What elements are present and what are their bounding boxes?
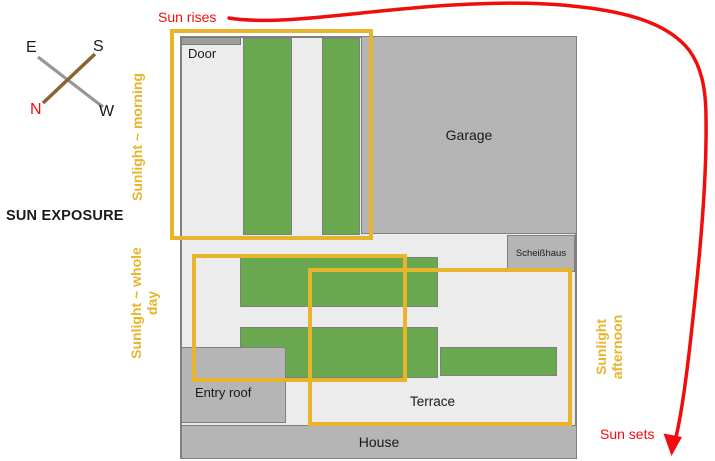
zone-whole-day-label: Sunlight ~ whole day (128, 247, 160, 359)
compass-label-north: N (30, 101, 42, 119)
entry-roof-label: Entry roof (195, 385, 251, 400)
compass-label-east: E (26, 39, 37, 57)
garage-label: Garage (446, 127, 493, 143)
garage: Garage (361, 36, 577, 234)
zone-afternoon-label: Sunlight afternoon (593, 315, 625, 380)
diagram-title: SUN EXPOSURE (6, 208, 124, 224)
arrowhead-icon (664, 434, 683, 457)
zone-afternoon-box (308, 268, 572, 426)
compass-label-west: W (99, 103, 114, 121)
house: House (181, 425, 577, 459)
sun-exposure-diagram: E S N W SUN EXPOSURE Door Garage Scheißh… (0, 0, 715, 461)
sun-sets-label: Sun sets (600, 426, 654, 442)
zone-morning-label: Sunlight ~ morning (129, 73, 145, 201)
sun-rises-label: Sun rises (158, 9, 216, 25)
scheisshaus: Scheißhaus (507, 235, 575, 272)
scheisshaus-label: Scheißhaus (516, 248, 566, 259)
zone-morning-box (170, 29, 373, 240)
compass-label-south: S (93, 38, 104, 56)
house-label: House (359, 434, 399, 450)
